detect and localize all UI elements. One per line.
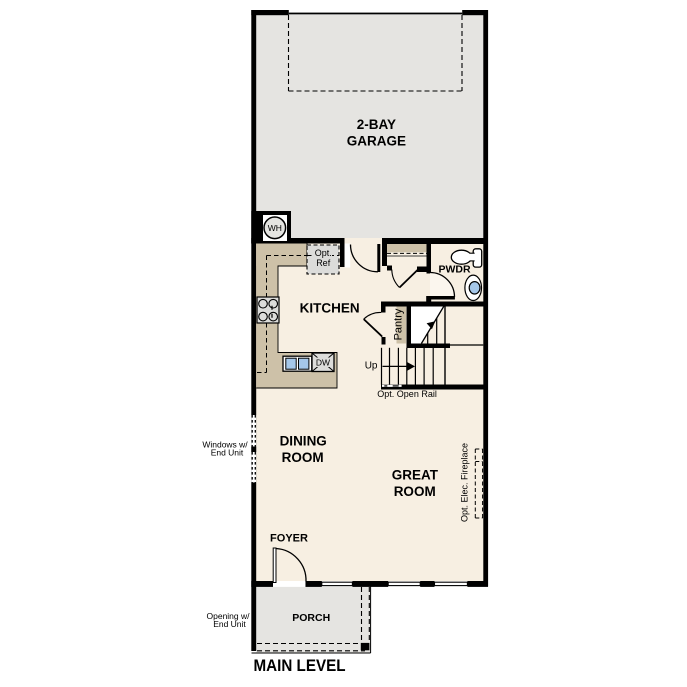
svg-text:End Unit: End Unit: [211, 448, 244, 458]
svg-text:DW: DW: [316, 358, 330, 368]
svg-text:Opt. Open Rail: Opt. Open Rail: [377, 389, 437, 399]
svg-text:Up: Up: [365, 361, 378, 372]
svg-text:WH: WH: [268, 223, 282, 233]
svg-text:PWDR: PWDR: [438, 263, 470, 275]
svg-text:End Unit: End Unit: [213, 619, 246, 629]
svg-text:ROOM: ROOM: [394, 484, 436, 499]
svg-text:PORCH: PORCH: [292, 612, 330, 624]
svg-text:DINING: DINING: [280, 434, 327, 449]
svg-text:Opt. Elec. Fireplace: Opt. Elec. Fireplace: [460, 443, 470, 522]
svg-text:Ref: Ref: [316, 258, 331, 268]
svg-text:KITCHEN: KITCHEN: [300, 300, 360, 315]
svg-text:GARAGE: GARAGE: [347, 134, 406, 149]
svg-text:Opt.: Opt.: [315, 248, 332, 258]
svg-text:GREAT: GREAT: [392, 467, 439, 482]
svg-text:MAIN LEVEL: MAIN LEVEL: [254, 657, 346, 675]
svg-text:Pantry: Pantry: [393, 308, 405, 340]
svg-text:FOYER: FOYER: [270, 532, 308, 544]
svg-text:ROOM: ROOM: [282, 450, 324, 465]
svg-text:2-BAY: 2-BAY: [357, 117, 396, 132]
